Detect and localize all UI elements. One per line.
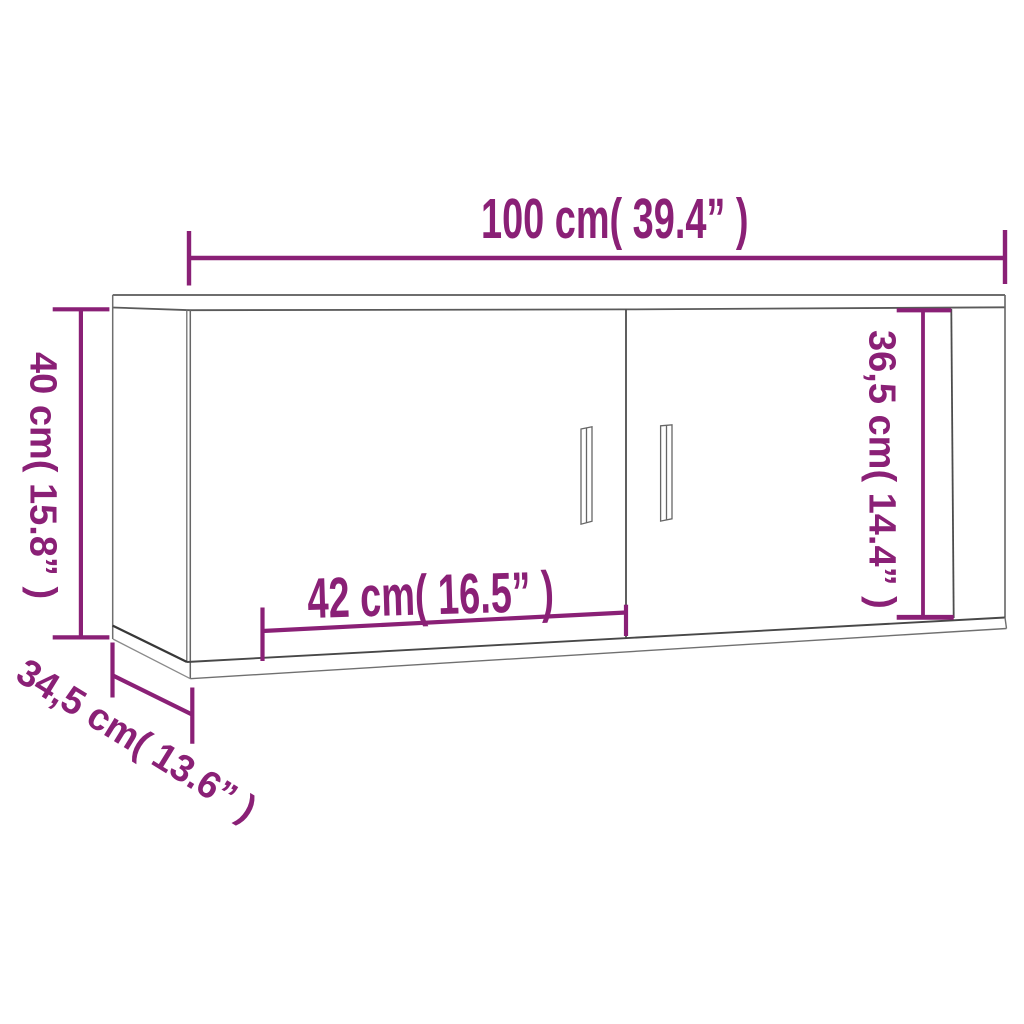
svg-text:100 cm( 39.4” ): 100 cm( 39.4” ) [481,187,749,251]
svg-text:36,5 cm( 14.4” ): 36,5 cm( 14.4” ) [861,330,903,609]
svg-text:40 cm( 15.8” ): 40 cm( 15.8” ) [22,352,64,599]
svg-text:42 cm( 16.5” ): 42 cm( 16.5” ) [306,560,554,631]
